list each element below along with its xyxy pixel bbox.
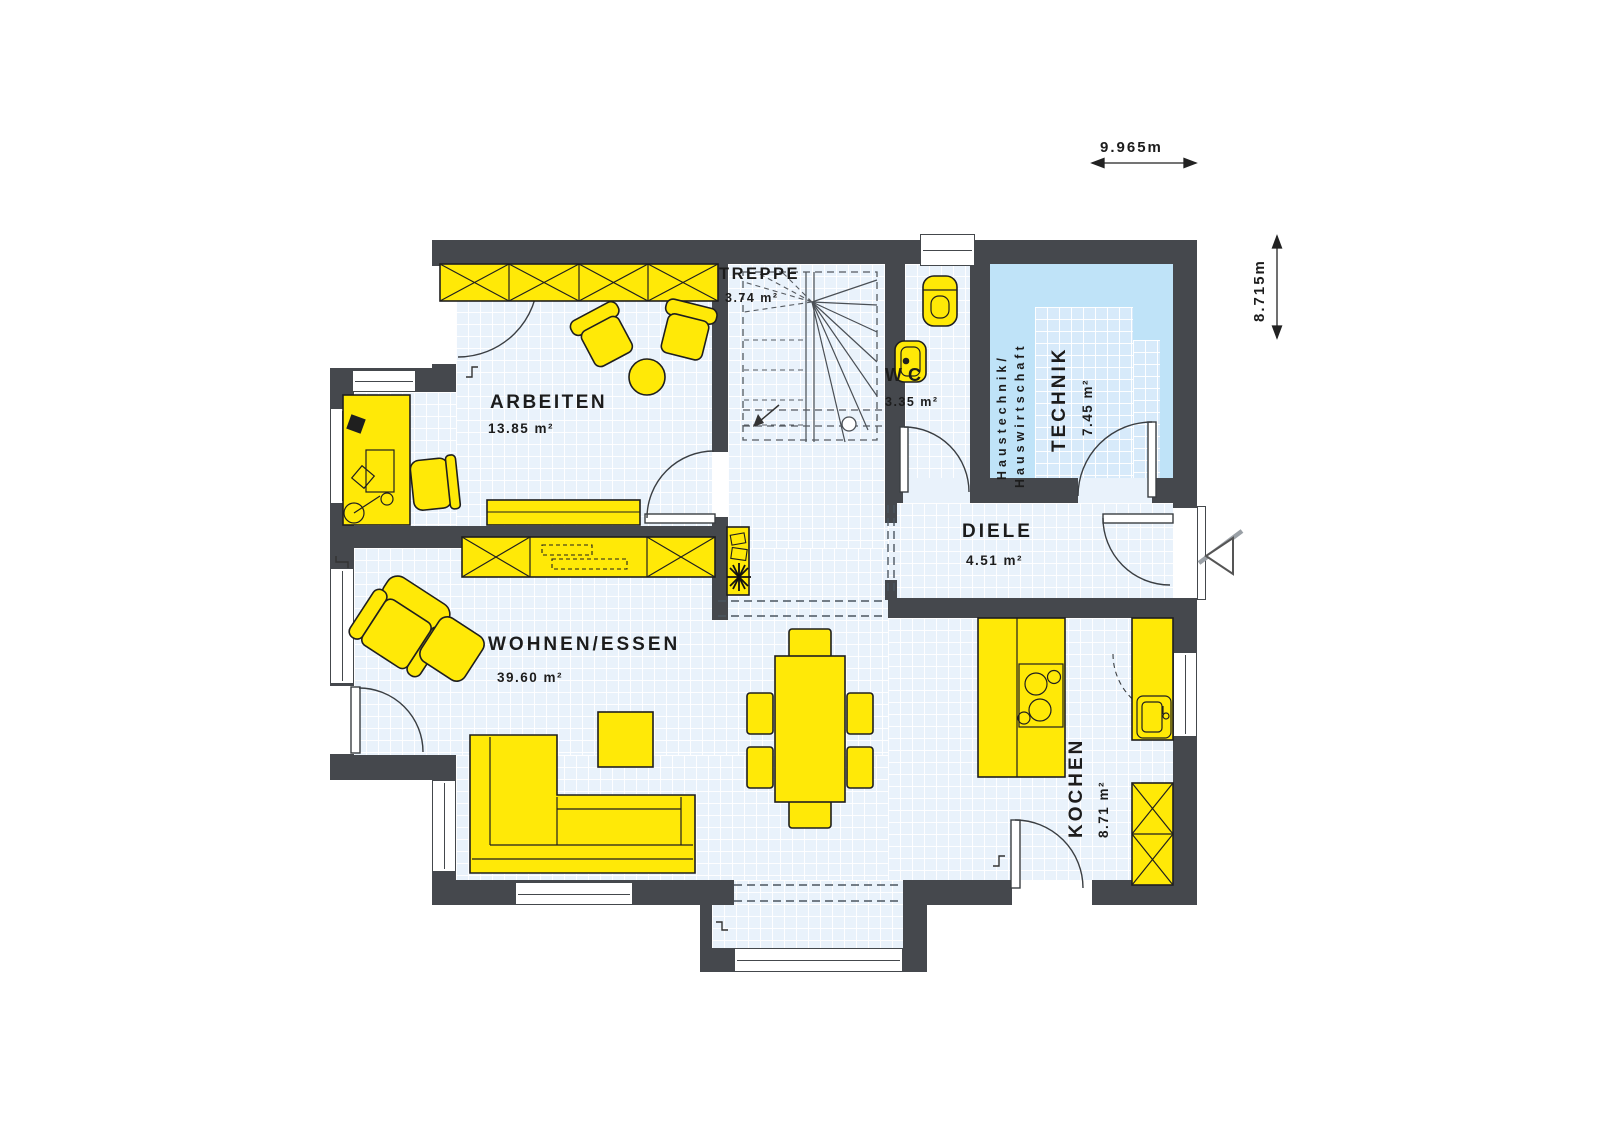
door-arbeiten-hall-icon <box>645 451 715 523</box>
room-label-kochen: KOCHEN <box>1066 738 1088 838</box>
sofa-icon <box>470 735 695 873</box>
dining-set-icon <box>747 629 873 828</box>
note-haustechnik-line2: Hauswirtschaft <box>1013 342 1027 488</box>
chair-icon <box>568 299 639 371</box>
room-label-treppe: TREPPE <box>719 265 800 284</box>
kitchen-island-icon <box>978 618 1065 777</box>
room-area-technik: 7.45 m² <box>1080 379 1095 436</box>
room-label-technik: TECHNIK <box>1049 347 1071 452</box>
door-wc-icon <box>900 427 969 492</box>
kitchen-tall-cabinet-icon <box>1132 783 1173 885</box>
round-table-icon <box>629 359 665 395</box>
entrance-arrow-icon <box>1199 531 1242 574</box>
kitchen-counter-sink-icon <box>1132 618 1173 740</box>
room-label-arbeiten: ARBEITEN <box>490 392 607 414</box>
room-area-arbeiten: 13.85 m² <box>488 421 554 436</box>
plant-shelf-icon <box>727 527 751 595</box>
dimension-width-label: 9.965m <box>1100 139 1163 156</box>
room-area-wc: 3.35 m² <box>885 395 939 409</box>
room-label-diele: DIELE <box>962 521 1033 543</box>
door-entrance-icon <box>1103 514 1173 585</box>
room-area-kochen: 8.71 m² <box>1096 781 1111 838</box>
room-area-wohnen-essen: 39.60 m² <box>497 670 563 685</box>
shelf-arbeiten-top-icon <box>440 264 718 301</box>
room-area-diele: 4.51 m² <box>966 553 1023 568</box>
office-chair-icon <box>409 455 460 514</box>
note-haustechnik-line1: Haustechnik/ <box>995 354 1009 480</box>
coffee-table-icon <box>598 712 653 767</box>
door-wohnen-left-icon <box>351 687 423 753</box>
toilet-icon <box>923 276 957 326</box>
dining-table-icon <box>775 656 845 802</box>
room-area-treppe: 3.74 m² <box>725 291 779 305</box>
desk-icon <box>343 395 410 525</box>
sideboard-wohnen-icon <box>462 537 715 577</box>
chair-icon <box>655 298 719 363</box>
room-label-wohnen-essen: WOHNEN/ESSEN <box>488 634 680 656</box>
floor-plan-canvas: ARBEITEN 13.85 m² TREPPE 3.74 m² WC 3.35… <box>0 0 1600 1132</box>
sideboard-arbeiten-icon <box>487 500 640 525</box>
dimension-height-label: 8.715m <box>1251 259 1268 322</box>
room-label-wc: WC <box>885 365 927 386</box>
